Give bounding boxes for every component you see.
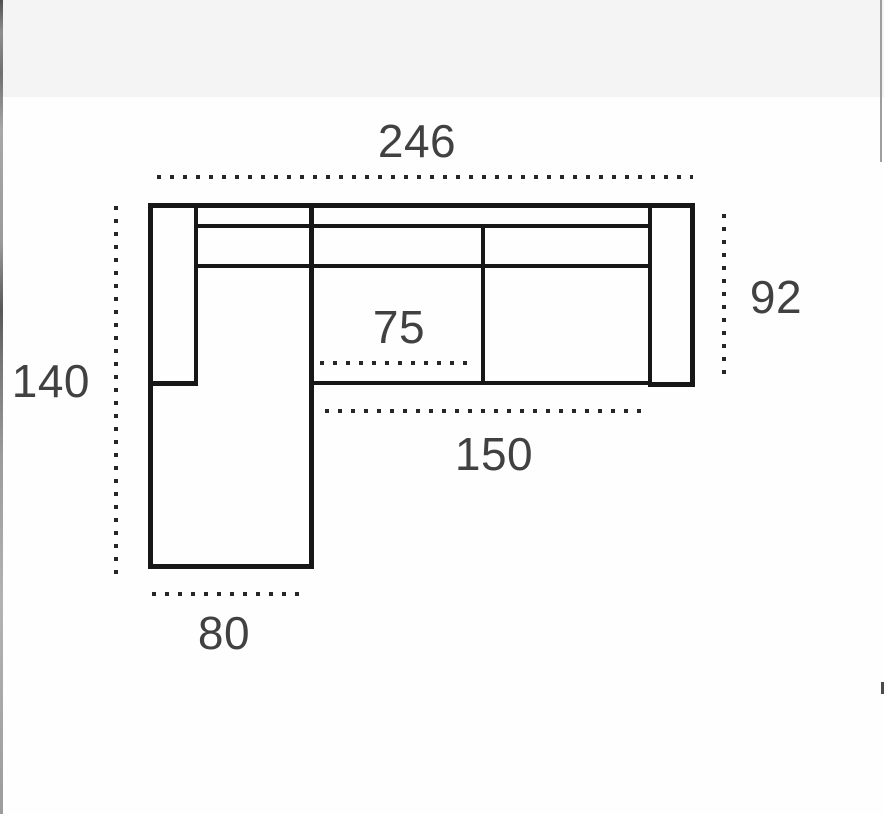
chaise-right-edge — [309, 203, 314, 569]
right-armrest-bottom-edge — [648, 382, 695, 387]
right-armrest-outer-edge — [690, 203, 695, 387]
right-armrest-inner-edge — [648, 203, 652, 387]
sofa-dimension-diagram: 246 140 92 75 150 80 — [0, 0, 884, 814]
dim-line-left-depth — [114, 206, 118, 574]
dim-label-seat-span: 150 — [434, 431, 554, 477]
dim-label-total-width: 246 — [357, 118, 477, 164]
left-armrest-bottom-edge — [148, 381, 198, 386]
dim-label-left-depth: 140 — [6, 358, 90, 404]
left-armrest-inner-edge — [194, 203, 198, 386]
dim-line-seat-span — [325, 409, 647, 413]
dim-line-middle-seat — [320, 361, 470, 365]
dim-line-chaise-width — [152, 592, 304, 596]
backrest-upper-line — [196, 224, 652, 228]
sofa-top-edge — [148, 203, 695, 208]
dim-label-chaise-width: 80 — [174, 610, 274, 656]
dim-line-body-depth — [722, 214, 726, 381]
dim-line-total-width — [157, 175, 693, 179]
chaise-bottom-edge — [148, 564, 314, 569]
backrest-lower-line — [196, 264, 652, 268]
seat-divider — [481, 226, 485, 384]
scan-edge-right-line — [880, 0, 882, 162]
dim-label-body-depth: 92 — [746, 274, 806, 320]
page-top-band — [0, 0, 884, 97]
sofa-left-edge — [148, 203, 153, 569]
scan-edge-left-strip — [0, 0, 3, 814]
dim-label-middle-seat: 75 — [363, 304, 435, 350]
